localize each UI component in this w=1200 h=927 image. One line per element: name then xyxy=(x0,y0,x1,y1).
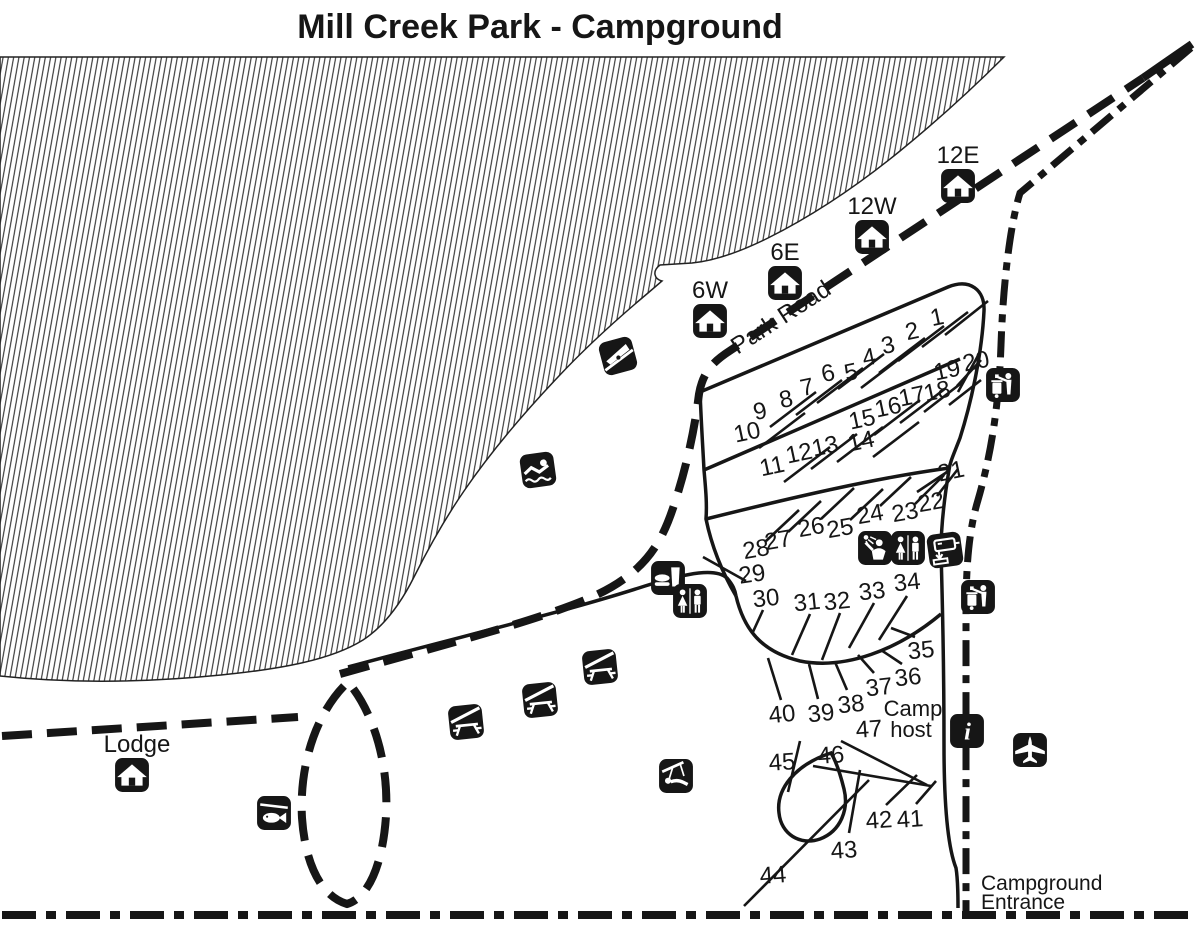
site-32-spur xyxy=(822,613,840,660)
site-1-number: 1 xyxy=(928,303,947,332)
site-31-spur xyxy=(792,614,810,655)
site-30-number: 30 xyxy=(751,584,780,614)
site-2-number: 2 xyxy=(903,317,922,346)
site-43-spur xyxy=(849,770,860,833)
site-21-number: 21 xyxy=(935,456,967,488)
shelter-12W-icon xyxy=(855,220,889,254)
shelter-12W-label: 12W xyxy=(847,193,897,220)
site-43-number: 43 xyxy=(830,836,859,865)
site-11-number: 11 xyxy=(757,451,787,483)
picnic-shelter-2-icon xyxy=(521,681,558,718)
swimming-area-icon xyxy=(519,451,557,489)
shelter-6W-label: 6W xyxy=(692,277,728,304)
site-19-number: 19 xyxy=(931,355,963,387)
dump-station-icon xyxy=(926,531,964,569)
site-7-number: 7 xyxy=(798,373,817,402)
site-38-number: 38 xyxy=(836,690,865,720)
site-30-spur xyxy=(752,610,763,634)
site-46-number: 46 xyxy=(817,741,846,770)
fishing-icon xyxy=(257,796,291,830)
map-canvas: i Mill Creek Park - Campground 123456789… xyxy=(0,0,1200,927)
site-35-spur xyxy=(891,628,915,637)
site-45-number: 45 xyxy=(768,748,797,777)
site-32-number: 32 xyxy=(822,587,851,617)
site-36-number: 36 xyxy=(893,663,922,693)
trash-north-icon xyxy=(986,368,1020,402)
site-39-spur xyxy=(809,664,818,699)
map-title: Mill Creek Park - Campground xyxy=(297,8,783,46)
lodge-icon xyxy=(115,758,149,792)
restroom-east-icon xyxy=(891,531,925,565)
site-33-spur xyxy=(849,603,874,648)
site-10-number: 10 xyxy=(731,417,763,449)
camp-host-line2: host xyxy=(890,717,932,742)
site-8-number: 8 xyxy=(777,385,796,414)
site-39-number: 39 xyxy=(806,699,835,729)
trash-south-icon xyxy=(961,580,995,614)
campground-map: i Mill Creek Park - Campground 123456789… xyxy=(0,0,1200,927)
site-23-number: 23 xyxy=(890,497,921,528)
site-34-number: 34 xyxy=(892,568,921,598)
playground-icon xyxy=(659,759,693,793)
shelter-6E-label: 6E xyxy=(770,239,799,266)
site-31-number: 31 xyxy=(792,588,821,618)
site-47-number: 47 xyxy=(855,715,884,744)
shelter-6W-icon xyxy=(693,304,727,338)
site-41-number: 41 xyxy=(896,805,925,834)
site-38-spur xyxy=(835,662,847,690)
shelter-12E-icon xyxy=(941,169,975,203)
site-36-spur xyxy=(881,650,902,664)
site-22-number: 22 xyxy=(916,487,947,518)
shelter-12E-label: 12E xyxy=(937,142,980,169)
information-icon xyxy=(950,714,984,748)
site-33-number: 33 xyxy=(857,577,886,607)
site-6-number: 6 xyxy=(819,359,838,388)
showers-icon xyxy=(858,531,892,565)
loop-trail xyxy=(302,686,387,904)
site-44-number: 44 xyxy=(759,861,788,890)
lodge-label: Lodge xyxy=(104,731,171,758)
site-24-number: 24 xyxy=(855,499,886,530)
boundary-line-right xyxy=(966,48,1191,915)
restroom-west-icon xyxy=(673,584,707,618)
site-18-spur xyxy=(949,380,981,405)
airport-icon xyxy=(1013,733,1047,767)
site-14-spur xyxy=(873,422,919,457)
site-42-number: 42 xyxy=(865,806,894,835)
site-40-spur xyxy=(768,658,781,700)
site-35-number: 35 xyxy=(906,636,935,666)
picnic-shelter-3-icon xyxy=(447,703,484,740)
site-26-number: 26 xyxy=(796,512,827,543)
site-13-number: 13 xyxy=(809,431,841,463)
campground-entrance-line2: Entrance xyxy=(981,891,1065,914)
site-15-number: 15 xyxy=(846,404,878,436)
picnic-shelter-1-icon xyxy=(581,648,618,685)
boat-ramp-icon xyxy=(597,335,638,376)
site-40-number: 40 xyxy=(767,700,796,730)
site-25-number: 25 xyxy=(825,513,856,544)
